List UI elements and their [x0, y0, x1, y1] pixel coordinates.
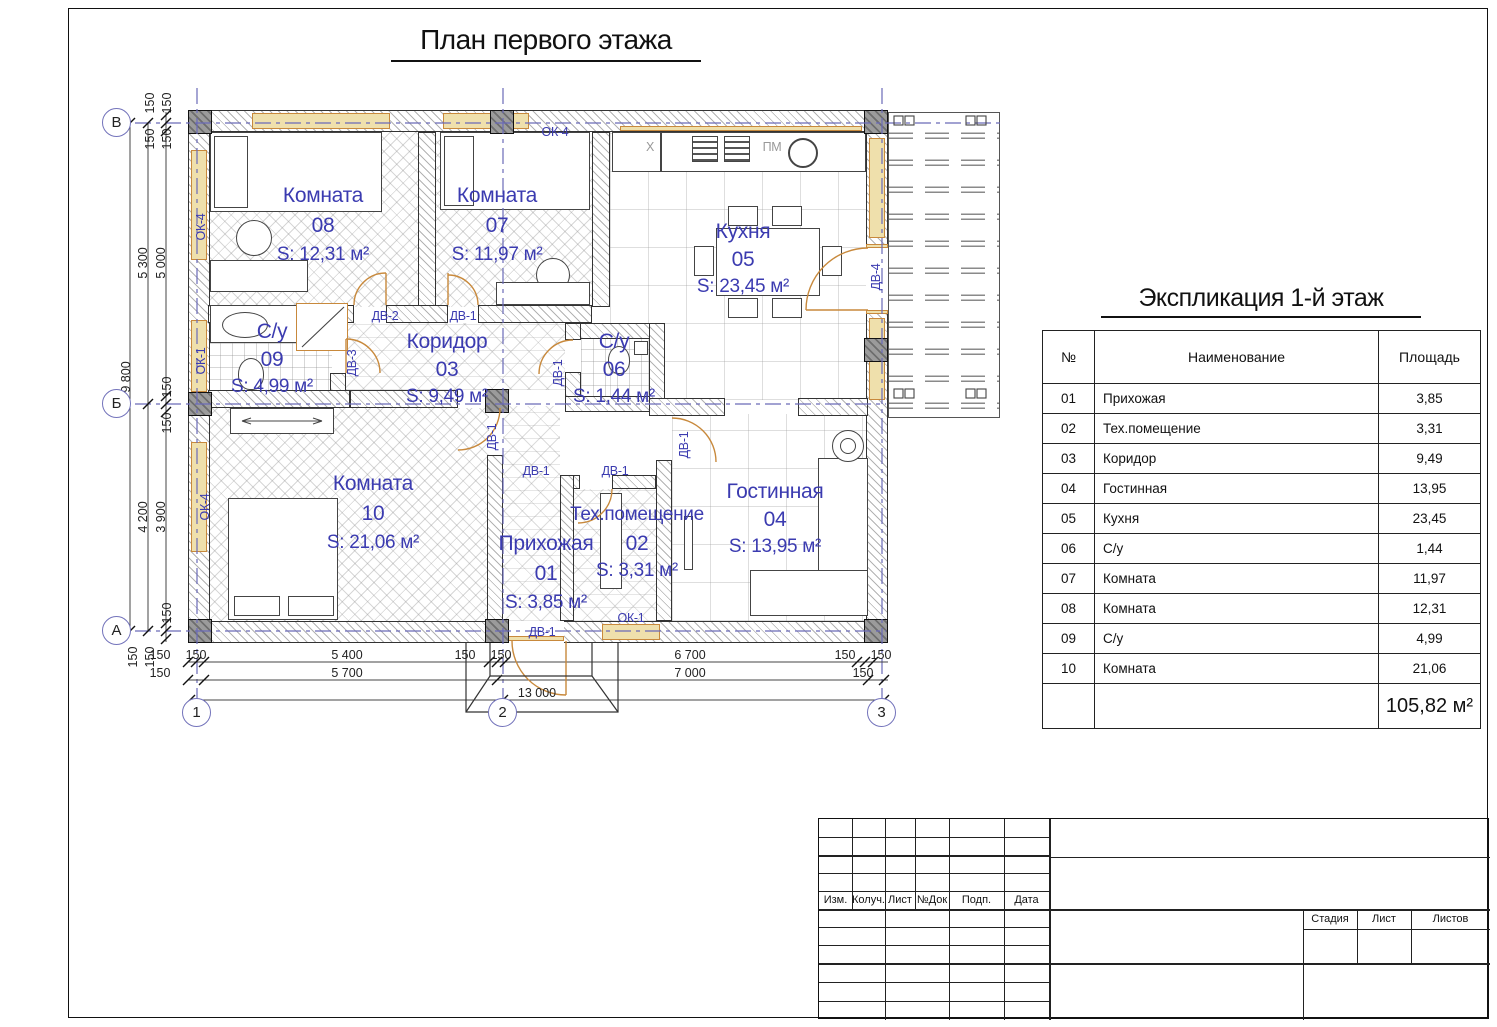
table-row: 05Кухня23,45 — [1043, 504, 1481, 534]
cell-area: 21,06 — [1379, 654, 1481, 684]
total-empty — [1095, 684, 1379, 729]
column — [864, 110, 888, 134]
stamp-stadia: Стадия — [1303, 913, 1357, 925]
column — [864, 338, 888, 362]
dim-label: 150 — [833, 666, 893, 680]
title-block-line — [1049, 909, 1490, 911]
cell-area: 9,49 — [1379, 444, 1481, 474]
chair — [822, 246, 842, 276]
floor-hallway — [503, 406, 560, 621]
window-tag-ok4: ОК-4 — [198, 485, 212, 529]
room-area: S: 23,45 м² — [663, 276, 823, 298]
desk — [496, 282, 590, 305]
stamp-list: Лист — [1357, 913, 1411, 925]
room-label: Комната — [293, 472, 453, 496]
dim-label: 5 400 — [317, 648, 377, 662]
cell-name: Коридор — [1095, 444, 1379, 474]
table-row: 01Прихожая3,85 — [1043, 384, 1481, 414]
stamp-col-data: Дата — [1004, 894, 1049, 906]
table-row: 07Комната11,97 — [1043, 564, 1481, 594]
stamp-col-list: Лист — [885, 894, 915, 906]
cell-num: 03 — [1043, 444, 1095, 474]
room-number: 09 — [192, 348, 352, 372]
grid-marker-b: Б — [102, 389, 131, 418]
door-jamb — [866, 310, 888, 314]
room-number: 03 — [367, 358, 527, 382]
cell-num: 01 — [1043, 384, 1095, 414]
title-block-line — [819, 945, 1049, 946]
room-label: Тех.помещение — [557, 504, 717, 526]
cell-name: Комната — [1095, 654, 1379, 684]
door-tag-dv1: ДВ-1 — [677, 423, 691, 467]
window-top-room07 — [443, 113, 529, 129]
room-area: S: 3,85 м² — [466, 592, 626, 614]
door-tag-dv1: ДВ-1 — [520, 625, 564, 639]
title-block-line — [1049, 857, 1490, 858]
terrace-deck — [888, 112, 1000, 418]
cell-name: Комната — [1095, 594, 1379, 624]
cell-num: 05 — [1043, 504, 1095, 534]
window-ok1-bottom — [602, 624, 660, 640]
title-block-line — [819, 927, 1049, 928]
sofa — [750, 570, 868, 616]
title-block-line — [1049, 819, 1051, 1020]
dim-label: 13 000 — [507, 686, 567, 700]
room-number: 02 — [557, 532, 717, 556]
room-area: S: 11,97 м² — [417, 244, 577, 266]
room-area: S: 13,95 м² — [695, 536, 855, 558]
room-label: С/у — [192, 320, 352, 344]
title-block-line — [819, 909, 1049, 911]
cell-area: 1,44 — [1379, 534, 1481, 564]
table-row: 06С/у1,44 — [1043, 534, 1481, 564]
room-number: 08 — [243, 214, 403, 238]
col-number: № — [1043, 331, 1095, 384]
wall-segment — [478, 305, 592, 323]
room-label: Комната — [417, 184, 577, 208]
title-block-line — [819, 982, 1049, 983]
dim-label: 6 700 — [660, 648, 720, 662]
grid-marker-v: В — [102, 108, 131, 137]
table-total-row: 105,82 м² — [1043, 684, 1481, 729]
col-name: Наименование — [1095, 331, 1379, 384]
bed-pillow — [234, 596, 280, 616]
room-label: Гостинная — [695, 480, 855, 504]
stamp-col-izm: Изм. — [819, 894, 852, 906]
grid-marker-2: 2 — [488, 698, 517, 727]
door-tag-dv2: ДВ-2 — [363, 309, 407, 323]
room-number: 04 — [695, 508, 855, 532]
cell-name: С/у — [1095, 534, 1379, 564]
dim-label: 150 — [130, 666, 190, 680]
stove-burners — [692, 136, 718, 162]
bed-pillow — [288, 596, 334, 616]
room-label: Коридор — [367, 330, 527, 354]
cell-name: Тех.помещение — [1095, 414, 1379, 444]
chair — [728, 298, 758, 318]
explication-table: № Наименование Площадь 01Прихожая3,8502Т… — [1042, 330, 1481, 729]
table-row: 10Комната21,06 — [1043, 654, 1481, 684]
title-block-line — [819, 963, 1490, 965]
door-tag-dv1: ДВ-1 — [551, 351, 565, 395]
room-area: S: 21,06 м² — [293, 532, 453, 554]
stamp-col-kol: Колуч. — [852, 894, 885, 906]
stamp-col-ndok: №Док — [915, 894, 949, 906]
dim-label: 5 700 — [317, 666, 377, 680]
cell-name: С/у — [1095, 624, 1379, 654]
dim-label: 150 — [160, 583, 174, 643]
dim-label: 150 — [143, 109, 157, 169]
dim-label: 5 000 — [154, 233, 168, 293]
room-area: S: 9,49 м² — [367, 386, 527, 408]
title-block-line — [1303, 929, 1490, 930]
wall-r07-kitchen — [592, 132, 610, 307]
column — [188, 619, 212, 643]
stove-burners — [724, 136, 750, 162]
column — [864, 619, 888, 643]
title-block-line — [819, 873, 1049, 874]
plant — [840, 438, 856, 454]
cell-num: 10 — [1043, 654, 1095, 684]
title-block-line — [819, 855, 1049, 857]
cell-name: Комната — [1095, 564, 1379, 594]
cell-name: Гостинная — [1095, 474, 1379, 504]
table-row: 03Коридор9,49 — [1043, 444, 1481, 474]
cell-num: 07 — [1043, 564, 1095, 594]
dim-label: 7 000 — [660, 666, 720, 680]
cell-name: Кухня — [1095, 504, 1379, 534]
cell-area: 12,31 — [1379, 594, 1481, 624]
dim-label: 150 — [160, 393, 174, 453]
door-tag-dv4: ДВ-4 — [869, 255, 883, 299]
dim-label: 150 — [166, 648, 226, 662]
room-label: Кухня — [663, 220, 823, 244]
room-area: S: 4,99 м² — [192, 376, 352, 398]
cell-area: 3,31 — [1379, 414, 1481, 444]
chair — [772, 298, 802, 318]
window-tag-ok1: ОК-1 — [609, 611, 653, 625]
window-tag-ok1: ОК-1 — [194, 339, 208, 383]
table-row: 09С/у4,99 — [1043, 624, 1481, 654]
cell-num: 04 — [1043, 474, 1095, 504]
grid-marker-3: 3 — [867, 698, 896, 727]
column — [490, 110, 514, 134]
wall-kitchen-living — [798, 398, 868, 416]
appliance-tag-pm: ПМ — [750, 140, 794, 154]
window-tag-ok4: ОК-4 — [533, 125, 577, 139]
window-strip-kitchen — [620, 126, 862, 131]
dresser — [230, 408, 334, 434]
title-block-line — [1004, 819, 1005, 1020]
door-tag-dv1: ДВ-1 — [593, 464, 637, 478]
table-row: 08Комната12,31 — [1043, 594, 1481, 624]
door-tag-dv1: ДВ-1 — [441, 309, 485, 323]
title-block-line — [819, 891, 1049, 892]
door-jamb — [866, 244, 888, 248]
cell-area: 3,85 — [1379, 384, 1481, 414]
cell-num: 09 — [1043, 624, 1095, 654]
total-area: 105,82 м² — [1379, 684, 1481, 729]
column — [485, 619, 509, 643]
window-top-room08 — [252, 113, 390, 129]
title-block-line — [885, 819, 886, 1020]
dim-label: 5 300 — [136, 233, 150, 293]
door-tag-dv3: ДВ-3 — [345, 341, 359, 385]
cell-area: 4,99 — [1379, 624, 1481, 654]
title-block-line — [949, 819, 950, 1020]
cell-area: 11,97 — [1379, 564, 1481, 594]
room-area: S: 3,31 м² — [557, 560, 717, 582]
dim-label: 150 — [471, 648, 531, 662]
grid-marker-a: А — [102, 616, 131, 645]
room-number: 07 — [417, 214, 577, 238]
dim-label: 150 — [160, 109, 174, 169]
title-block: Изм. Колуч. Лист №Док Подп. Дата Стадия … — [818, 818, 1489, 1019]
total-empty — [1043, 684, 1095, 729]
page-title: План первого этажа — [391, 24, 701, 62]
door-tag-dv1: ДВ-1 — [485, 415, 499, 459]
table-header-row: № Наименование Площадь — [1043, 331, 1481, 384]
cell-area: 13,95 — [1379, 474, 1481, 504]
drawing-sheet: План первого этажа — [0, 0, 1497, 1027]
cell-num: 02 — [1043, 414, 1095, 444]
appliance-tag-x: X — [628, 140, 672, 154]
door-tag-dv1: ДВ-1 — [514, 464, 558, 478]
cell-name: Прихожая — [1095, 384, 1379, 414]
grid-marker-1: 1 — [182, 698, 211, 727]
explication: Экспликация 1-й этаж № Наименование Площ… — [1042, 284, 1480, 729]
window-right-upper — [869, 138, 885, 238]
title-block-line — [819, 1001, 1049, 1002]
table-row: 02Тех.помещение3,31 — [1043, 414, 1481, 444]
dim-label: 4 200 — [136, 487, 150, 547]
dim-label: 150 — [851, 648, 911, 662]
column — [188, 110, 212, 134]
cell-num: 08 — [1043, 594, 1095, 624]
explication-title: Экспликация 1-й этаж — [1101, 284, 1421, 318]
col-area: Площадь — [1379, 331, 1481, 384]
title-block-line — [819, 837, 1049, 838]
cell-area: 23,45 — [1379, 504, 1481, 534]
room-label: Комната — [243, 184, 403, 208]
room-number: 10 — [293, 502, 453, 526]
table-row: 04Гостинная13,95 — [1043, 474, 1481, 504]
window-tag-ok4: ОК-4 — [194, 205, 208, 249]
room-number: 05 — [663, 248, 823, 272]
dim-label: 3 900 — [154, 487, 168, 547]
stamp-col-podp: Подп. — [949, 894, 1004, 906]
cell-num: 06 — [1043, 534, 1095, 564]
stamp-listov: Листов — [1411, 913, 1490, 925]
room-area: S: 12,31 м² — [243, 244, 403, 266]
